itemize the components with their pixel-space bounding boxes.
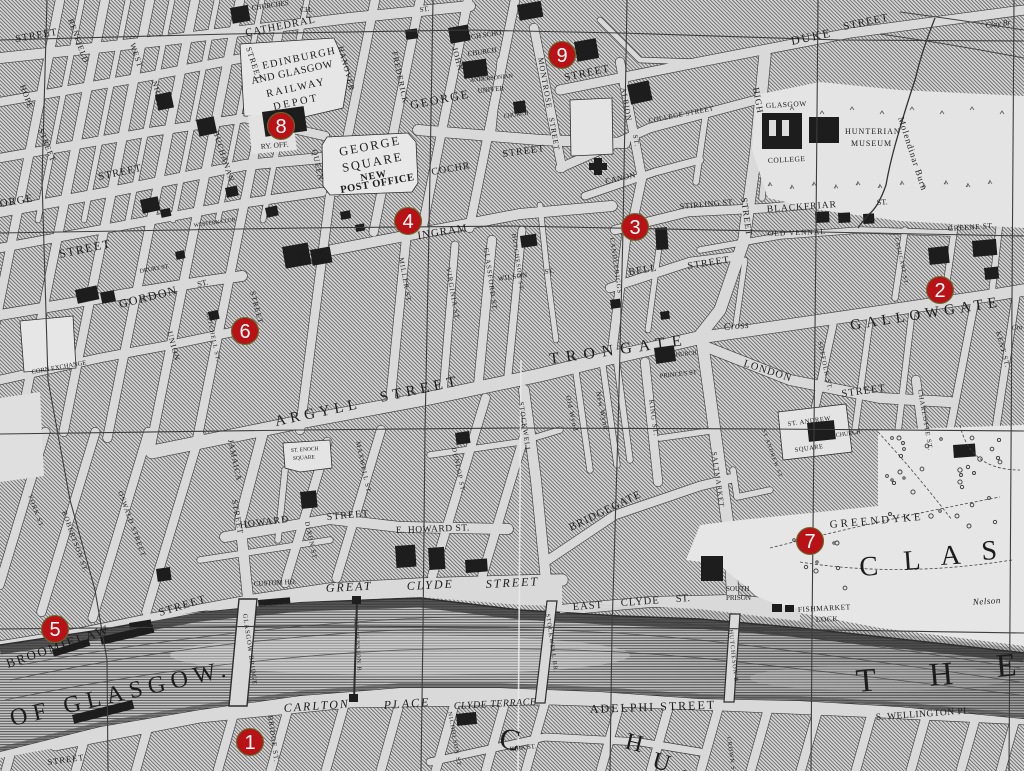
svg-text:7: 7 xyxy=(804,531,815,553)
svg-text:1: 1 xyxy=(244,732,255,754)
svg-text:L: L xyxy=(902,545,921,577)
svg-text:Cro: Cro xyxy=(1011,323,1023,332)
svg-text:S: S xyxy=(980,535,998,567)
svg-text:MUSEUM: MUSEUM xyxy=(851,139,892,148)
svg-text:C: C xyxy=(858,551,879,583)
svg-text:Cross: Cross xyxy=(723,320,749,333)
svg-text:E: E xyxy=(995,647,1018,685)
svg-text:SOUTH: SOUTH xyxy=(726,585,749,593)
svg-text:HUNTERIAN: HUNTERIAN xyxy=(845,127,901,136)
svg-text:GREAT: GREAT xyxy=(325,579,373,595)
svg-text:LOCK: LOCK xyxy=(816,614,839,624)
svg-text:EAST: EAST xyxy=(572,600,603,613)
svg-text:ST.: ST. xyxy=(675,593,690,605)
svg-text:STREET: STREET xyxy=(485,574,539,591)
svg-text:CLYDE: CLYDE xyxy=(406,577,454,593)
svg-text:ST.: ST. xyxy=(544,267,555,276)
svg-text:4: 4 xyxy=(402,211,413,233)
svg-text:9: 9 xyxy=(556,45,567,67)
svg-text:3: 3 xyxy=(629,217,640,239)
svg-text:ST.: ST. xyxy=(419,5,430,14)
svg-text:5: 5 xyxy=(49,619,60,641)
svg-text:ST.: ST. xyxy=(877,197,888,207)
svg-text:PRISON: PRISON xyxy=(726,594,751,602)
svg-text:2: 2 xyxy=(934,280,945,302)
svg-text:6: 6 xyxy=(239,321,250,343)
svg-text:H: H xyxy=(928,656,955,694)
svg-text:Nelson: Nelson xyxy=(971,595,1001,607)
svg-text:8: 8 xyxy=(275,116,286,138)
svg-text:CH.: CH. xyxy=(300,5,312,14)
svg-text:T: T xyxy=(855,662,878,700)
svg-text:A: A xyxy=(939,540,962,572)
